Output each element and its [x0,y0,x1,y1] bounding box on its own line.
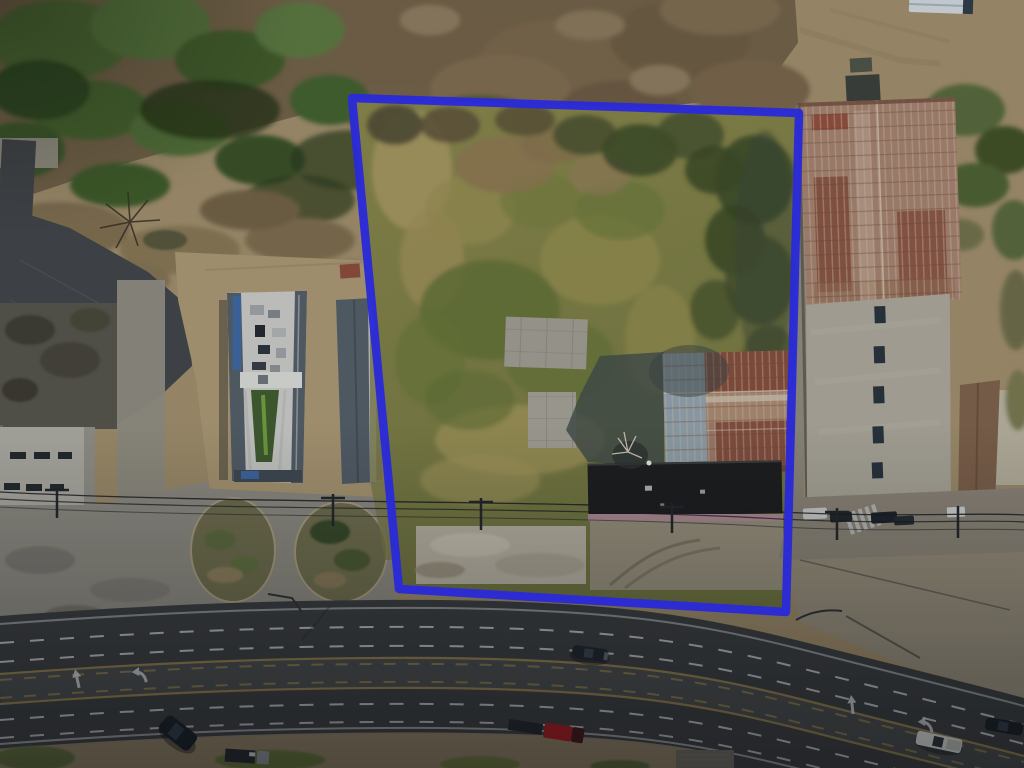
photo-vignette [0,0,1024,768]
aerial-photo-canvas: Aerial drone photo of a vacant overgrown… [0,0,1024,768]
aerial-photo: Aerial drone photo of a vacant overgrown… [0,0,1024,768]
